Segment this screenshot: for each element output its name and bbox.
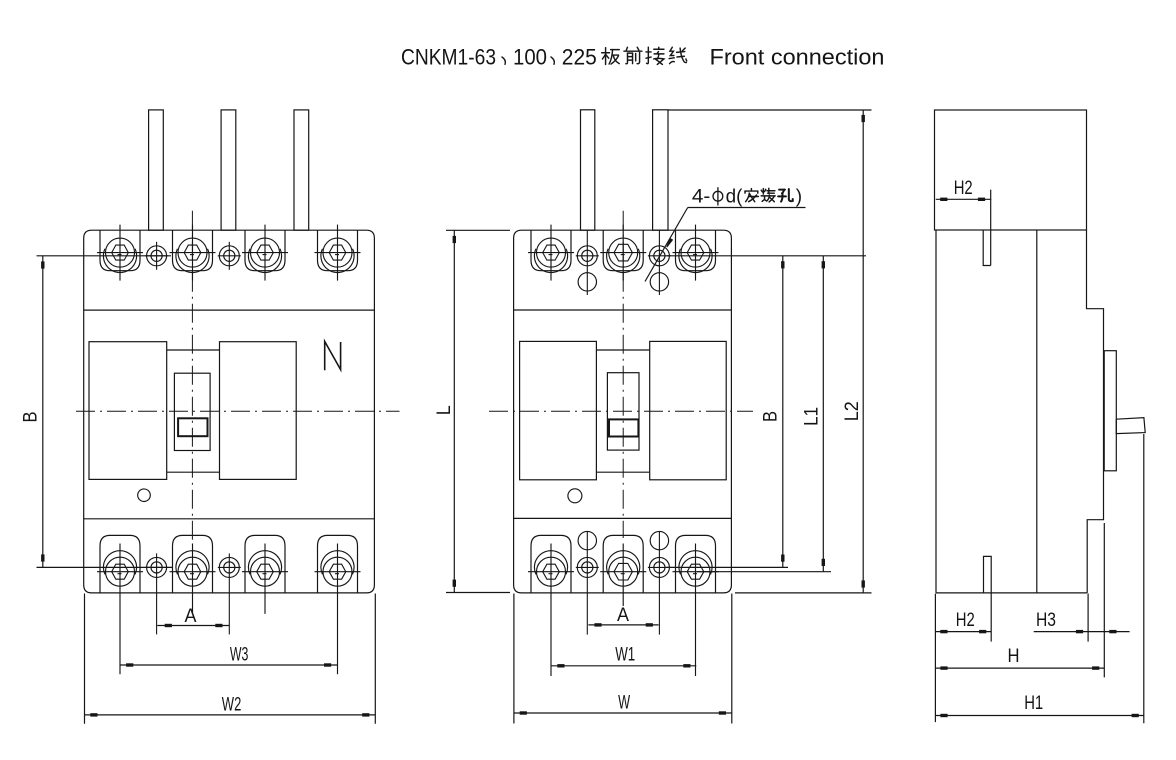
svg-text:L1: L1 [802,407,823,426]
svg-text:Front connection: Front connection [710,45,885,70]
svg-text:H1: H1 [1024,693,1043,714]
svg-text:H2: H2 [956,610,975,631]
svg-text:L: L [434,405,455,415]
svg-text:225: 225 [562,45,597,70]
svg-text:L2: L2 [842,401,863,421]
svg-text:W1: W1 [615,645,635,666]
svg-text:B: B [20,412,41,423]
svg-text:): ) [796,187,802,208]
svg-text:W3: W3 [230,645,249,666]
svg-text:100: 100 [513,45,547,70]
svg-text:H3: H3 [1036,610,1056,631]
svg-text:W: W [618,692,630,713]
svg-text:H2: H2 [954,178,973,199]
svg-text:A: A [185,606,197,627]
svg-text:W2: W2 [222,695,242,716]
svg-text:CNKM1-63: CNKM1-63 [401,45,496,70]
svg-text:A: A [617,605,629,626]
svg-text:B: B [761,411,782,422]
svg-text:d(: d( [726,187,743,208]
svg-text:H: H [1008,646,1020,667]
svg-text:4-: 4- [692,187,710,208]
